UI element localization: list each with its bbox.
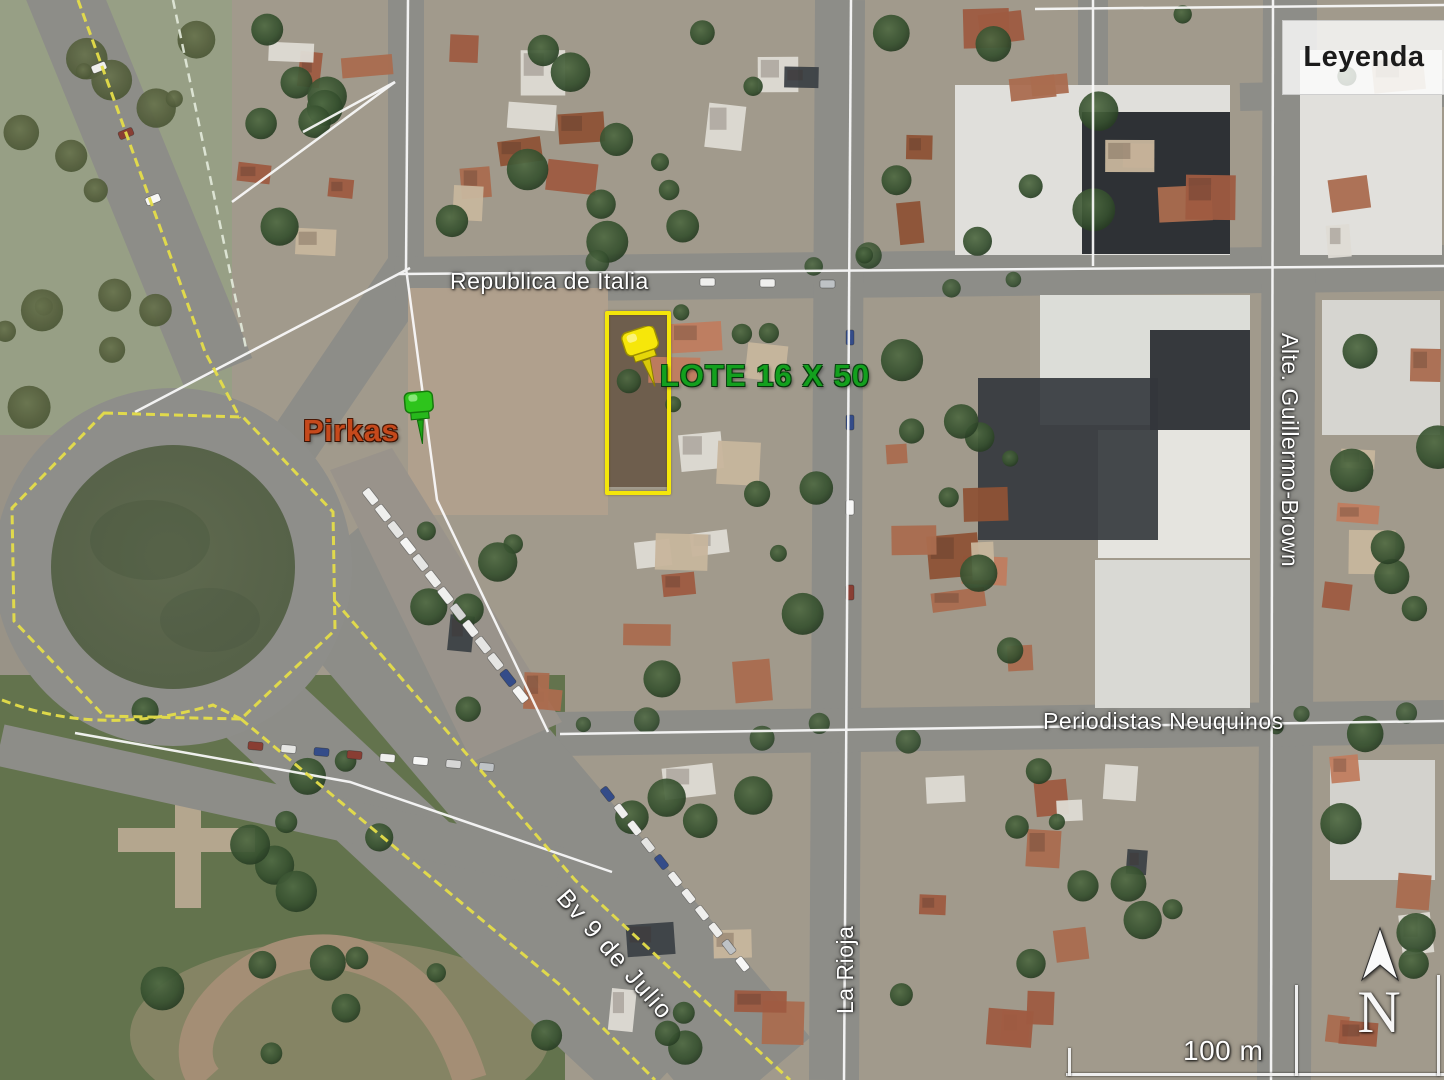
scale-tick	[1437, 975, 1440, 1076]
scale-bar	[1066, 1073, 1444, 1076]
pirkas-pushpin-icon[interactable]	[399, 390, 441, 450]
street-label-la-rioja: La Rioja	[832, 926, 859, 1014]
pirkas-label: Pirkas	[303, 413, 399, 449]
satellite-imagery	[0, 0, 1444, 1080]
map-canvas[interactable]: Republica de Italia Alte. Guillermo-Brow…	[0, 0, 1444, 1080]
scale-tick	[1068, 1048, 1071, 1076]
roundabout	[23, 417, 323, 717]
street-label-periodistas-neuquinos: Periodistas Neuquinos	[1043, 708, 1284, 735]
street-label-republica-de-italia: Republica de Italia	[450, 268, 649, 295]
legend-title: Leyenda	[1303, 41, 1424, 74]
north-arrow-icon	[1356, 926, 1404, 984]
north-label: N	[1351, 982, 1407, 1042]
scale-tick	[1295, 985, 1298, 1076]
legend-box: Leyenda	[1282, 20, 1444, 95]
lot-label: LOTE 16 X 50	[660, 358, 870, 394]
street-label-alte-guillermo-brown: Alte. Guillermo-Brown	[1276, 333, 1303, 567]
scale-label: 100 m	[1183, 1035, 1263, 1067]
